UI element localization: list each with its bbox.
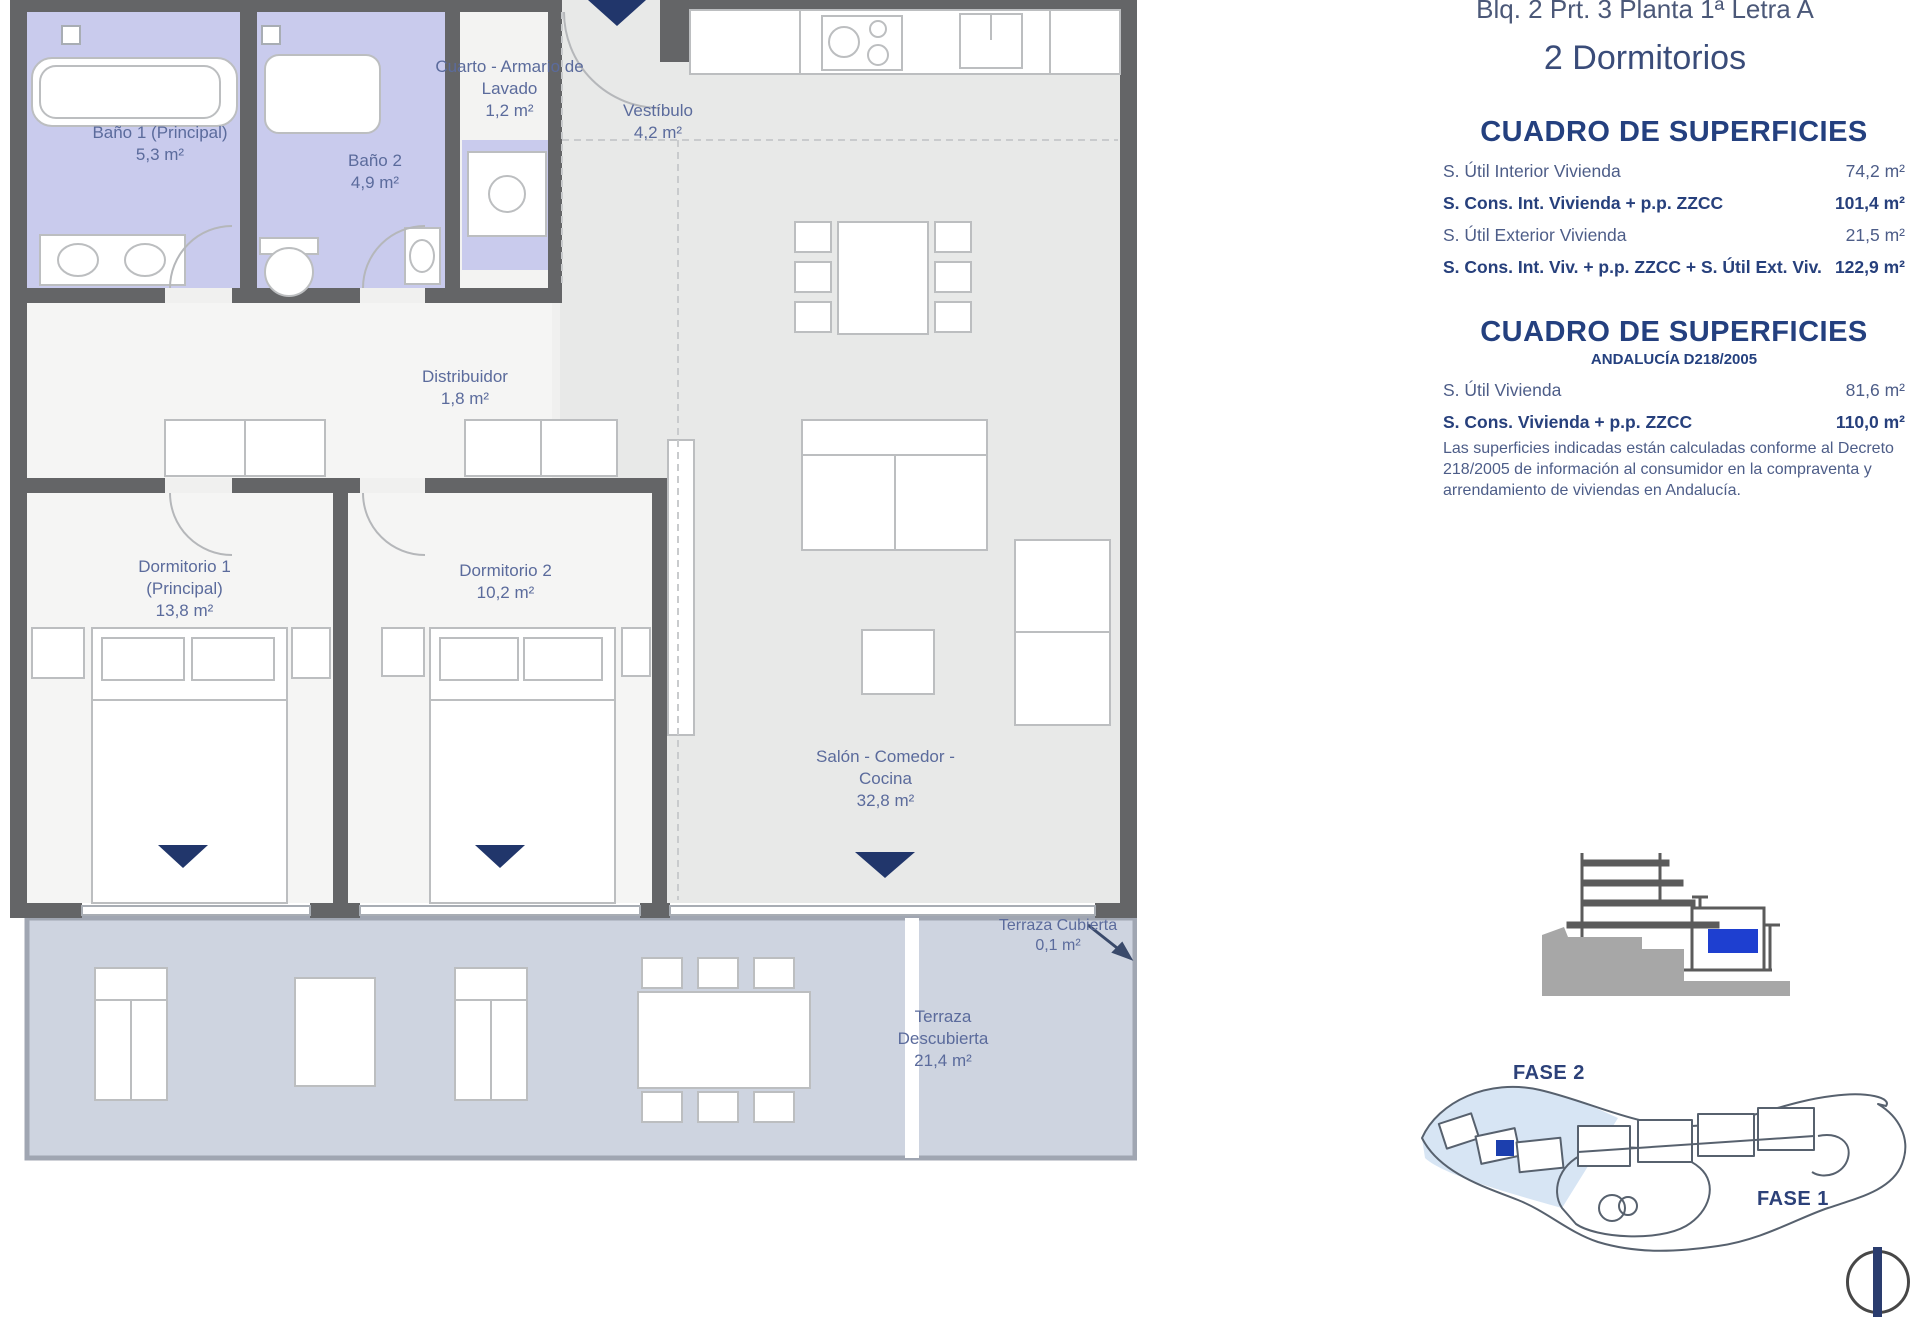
table-row: S. Cons. Int. Vivienda + p.p. ZZCC 101,4… bbox=[1443, 193, 1905, 214]
row-label: S. Útil Exterior Vivienda bbox=[1443, 225, 1627, 246]
unit-subtitle: 2 Dormitorios bbox=[1410, 39, 1880, 78]
room-area: 4,9 m² bbox=[305, 172, 445, 194]
site-plan-drawing bbox=[1400, 1040, 1920, 1265]
surfaces-table: CUADRO DE SUPERFICIES S. Útil Interior V… bbox=[1443, 116, 1905, 278]
row-label: S. Cons. Vivienda + p.p. ZZCC bbox=[1443, 412, 1692, 433]
room-name: Baño 2 bbox=[305, 150, 445, 172]
room-label-bano1: Baño 1 (Principal) 5,3 m² bbox=[70, 122, 250, 166]
room-label-dormitorio1: Dormitorio 1 (Principal) 13,8 m² bbox=[102, 556, 267, 621]
building-section-diagram bbox=[1542, 853, 1798, 1005]
row-label: S. Útil Vivienda bbox=[1443, 380, 1561, 401]
table-row: S. Útil Exterior Vivienda 21,5 m² bbox=[1443, 225, 1905, 246]
room-name: Baño 1 (Principal) bbox=[70, 122, 250, 144]
fase2-label: FASE 2 bbox=[1513, 1062, 1585, 1085]
room-label-dormitorio2: Dormitorio 2 10,2 m² bbox=[423, 560, 588, 604]
row-label: S. Útil Interior Vivienda bbox=[1443, 161, 1621, 182]
info-panel: Blq. 2 Prt. 3 Planta 1ª Letra A 2 Dormit… bbox=[1375, 0, 1915, 501]
compass-needle bbox=[1873, 1247, 1882, 1317]
row-label: S. Cons. Int. Vivienda + p.p. ZZCC bbox=[1443, 193, 1723, 214]
room-label-terraza-descubierta: Terraza Descubierta 21,4 m² bbox=[878, 1006, 1008, 1071]
site-unit-marker bbox=[1496, 1140, 1514, 1156]
compass-icon bbox=[1846, 1250, 1910, 1314]
room-area: 13,8 m² bbox=[102, 600, 267, 622]
unit-title: Blq. 2 Prt. 3 Planta 1ª Letra A bbox=[1410, 0, 1880, 25]
room-name: Terraza Descubierta bbox=[878, 1006, 1008, 1050]
row-value: 122,9 m² bbox=[1835, 257, 1905, 278]
room-label-lavado: Cuarto - Armario de Lavado 1,2 m² bbox=[432, 56, 587, 121]
row-label: S. Cons. Int. Viv. + p.p. ZZCC + S. Útil… bbox=[1443, 257, 1822, 278]
row-value: 110,0 m² bbox=[1836, 412, 1905, 433]
room-name: Salón - Comedor - Cocina bbox=[803, 746, 968, 790]
room-area: 21,4 m² bbox=[878, 1050, 1008, 1072]
room-area: 1,8 m² bbox=[395, 388, 535, 410]
room-label-salon: Salón - Comedor - Cocina 32,8 m² bbox=[803, 746, 968, 811]
row-value: 101,4 m² bbox=[1835, 193, 1905, 214]
surfaces-table-subheading: ANDALUCÍA D218/2005 bbox=[1443, 351, 1905, 368]
surfaces-table-heading: CUADRO DE SUPERFICIES bbox=[1443, 116, 1905, 149]
floor-plan: Baño 1 (Principal) 5,3 m² Baño 2 4,9 m² … bbox=[10, 0, 1137, 1168]
room-name: Terraza Cubierta bbox=[968, 916, 1148, 936]
room-area: 10,2 m² bbox=[423, 582, 588, 604]
row-value: 21,5 m² bbox=[1846, 225, 1905, 246]
table-row: S. Útil Vivienda 81,6 m² bbox=[1443, 380, 1905, 401]
room-label-terraza-cubierta: Terraza Cubierta 0,1 m² bbox=[968, 916, 1148, 957]
room-name: Dormitorio 2 bbox=[423, 560, 588, 582]
surfaces-table-andalucia: CUADRO DE SUPERFICIES ANDALUCÍA D218/200… bbox=[1443, 316, 1905, 501]
table-row: S. Útil Interior Vivienda 74,2 m² bbox=[1443, 161, 1905, 182]
table-row: S. Cons. Int. Viv. + p.p. ZZCC + S. Útil… bbox=[1443, 257, 1905, 278]
fase1-label: FASE 1 bbox=[1757, 1188, 1829, 1211]
room-area: 32,8 m² bbox=[803, 790, 968, 812]
room-name: Vestíbulo bbox=[588, 100, 728, 122]
room-name: Dormitorio 1 (Principal) bbox=[102, 556, 267, 600]
room-area: 1,2 m² bbox=[432, 100, 587, 122]
room-label-distribuidor: Distribuidor 1,8 m² bbox=[395, 366, 535, 410]
row-value: 74,2 m² bbox=[1846, 161, 1905, 182]
row-value: 81,6 m² bbox=[1846, 380, 1905, 401]
room-label-bano2: Baño 2 4,9 m² bbox=[305, 150, 445, 194]
section-drawing bbox=[1542, 853, 1798, 1005]
room-area: 4,2 m² bbox=[588, 122, 728, 144]
legal-note: Las superficies indicadas están calculad… bbox=[1443, 439, 1898, 501]
section-unit-marker bbox=[1708, 929, 1758, 953]
surfaces-table-heading: CUADRO DE SUPERFICIES bbox=[1443, 316, 1905, 349]
room-area: 0,1 m² bbox=[968, 936, 1148, 956]
site-plan: FASE 2 FASE 1 bbox=[1400, 1040, 1920, 1265]
site-outline bbox=[1422, 1087, 1905, 1251]
room-name: Cuarto - Armario de Lavado bbox=[432, 56, 587, 100]
room-area: 5,3 m² bbox=[70, 144, 250, 166]
room-name: Distribuidor bbox=[395, 366, 535, 388]
table-row: S. Cons. Vivienda + p.p. ZZCC 110,0 m² bbox=[1443, 412, 1905, 433]
room-label-vestibulo: Vestíbulo 4,2 m² bbox=[588, 100, 728, 144]
